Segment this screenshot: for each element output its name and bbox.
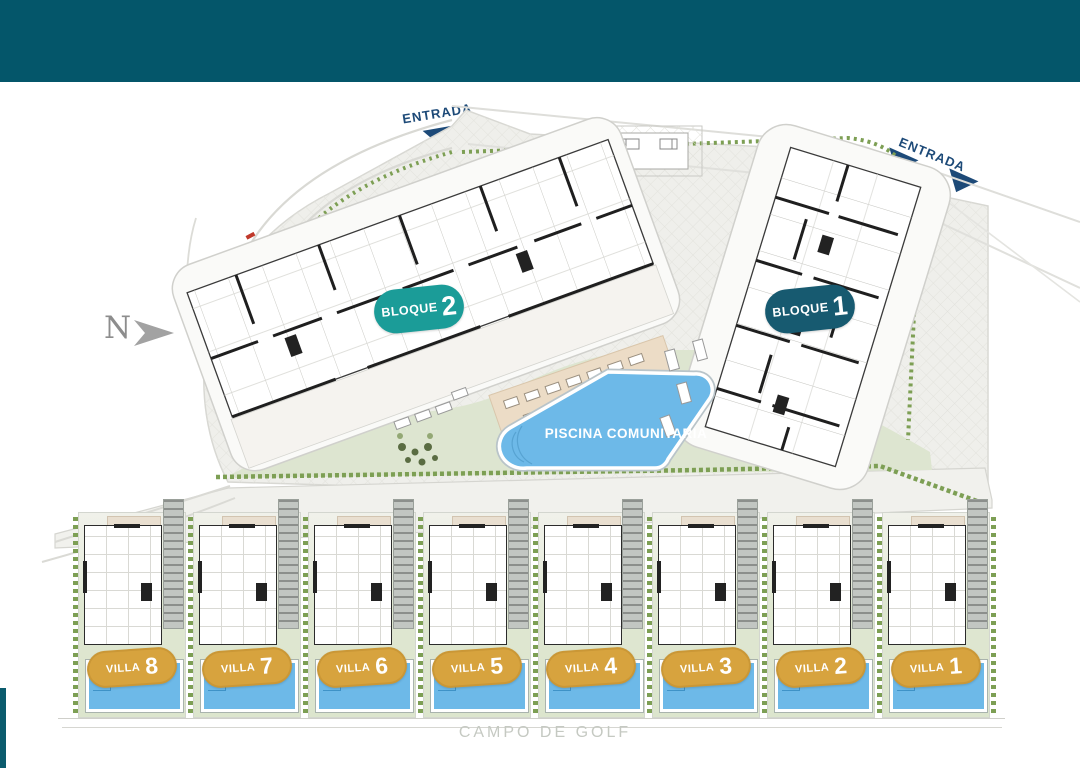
- villa-plot-8: VILLA 8: [78, 512, 186, 718]
- villa-8-label: VILLA: [106, 661, 141, 675]
- villa-plot-2: VILLA 2: [767, 512, 875, 718]
- villa-1-number: 1: [948, 654, 962, 678]
- villa-3-number: 3: [719, 654, 733, 678]
- villa-4-number: 4: [604, 654, 618, 678]
- villa-plot-3: VILLA 3: [652, 512, 760, 718]
- hedge-strip: [73, 517, 78, 715]
- villas-row: VILLA 8 VILLA 7 VILLA 6: [78, 512, 990, 718]
- driveway: [163, 499, 184, 629]
- villa-3-label: VILLA: [680, 661, 715, 675]
- bloque-2-label: BLOQUE: [381, 300, 439, 320]
- villa-3-badge[interactable]: VILLA 3: [660, 646, 752, 689]
- villa-7-badge[interactable]: VILLA 7: [201, 646, 293, 689]
- villa-5-label: VILLA: [450, 661, 485, 675]
- villa-7-number: 7: [259, 654, 273, 678]
- bloque-1-label: BLOQUE: [772, 300, 830, 320]
- villa-plot-5: VILLA 5: [423, 512, 531, 718]
- villa-plot-4: VILLA 4: [538, 512, 646, 718]
- site-plan-page: N ENTRADA ENTRADA BLOQUE 2 BLOQUE 1 PISC…: [0, 0, 1080, 768]
- villa-plot-6: VILLA 6: [308, 512, 416, 718]
- villa-2-label: VILLA: [795, 661, 830, 675]
- bloque-2-number: 2: [440, 292, 458, 320]
- villa-5-number: 5: [489, 654, 503, 678]
- villa-4-badge[interactable]: VILLA 4: [545, 646, 637, 689]
- villa-1-label: VILLA: [910, 661, 945, 675]
- villa-4-label: VILLA: [565, 661, 600, 675]
- villa-2-badge[interactable]: VILLA 2: [775, 646, 867, 689]
- villa-6-label: VILLA: [335, 661, 370, 675]
- villa-8-number: 8: [144, 654, 158, 678]
- villa-plot-7: VILLA 7: [193, 512, 301, 718]
- villa-1-badge[interactable]: VILLA 1: [890, 646, 982, 689]
- villa-2-number: 2: [834, 654, 848, 678]
- villa-floorplan: [84, 525, 162, 645]
- villa-plot-1: VILLA 1: [882, 512, 990, 718]
- villa-7-label: VILLA: [220, 661, 255, 675]
- villa-5-badge[interactable]: VILLA 5: [430, 646, 522, 689]
- villa-6-badge[interactable]: VILLA 6: [316, 646, 408, 689]
- villa-8-badge[interactable]: VILLA 8: [86, 646, 178, 689]
- villa-6-number: 6: [374, 654, 388, 678]
- bloque-1-number: 1: [831, 292, 849, 320]
- communal-pool-label: PISCINA COMUNITARIA: [538, 426, 714, 441]
- north-arrow-icon: [132, 312, 176, 356]
